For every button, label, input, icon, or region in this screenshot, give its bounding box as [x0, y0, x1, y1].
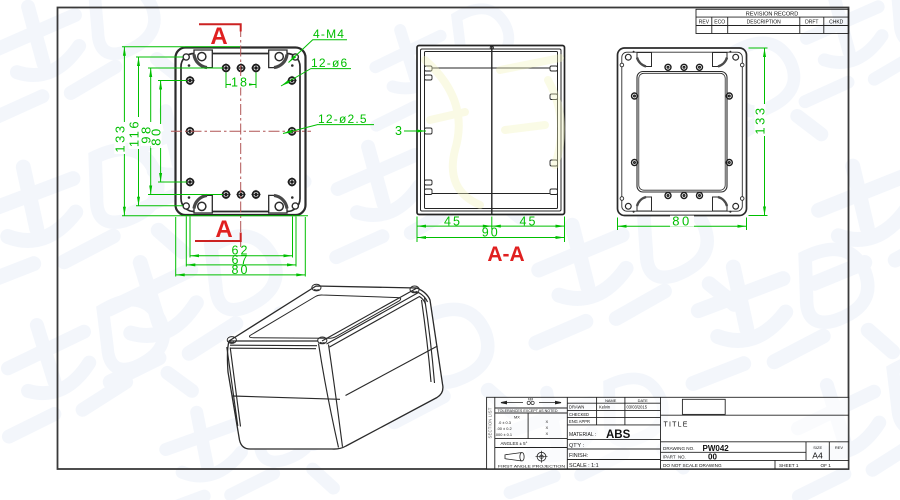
svg-text:REV: REV [699, 19, 710, 25]
svg-text:ECO: ECO [714, 19, 725, 25]
svg-text:MX: MX [514, 414, 520, 419]
svg-text:/PART NO.: /PART NO. [663, 455, 686, 460]
svg-text:FINISH:: FINISH: [569, 453, 588, 459]
svg-text:SIZE: SIZE [813, 445, 822, 450]
svg-text:SECTION LIST: SECTION LIST [487, 407, 492, 438]
svg-text:CHKD: CHKD [829, 19, 844, 25]
svg-text:MATERIAL :: MATERIAL : [569, 432, 596, 438]
svg-text:TOLERANCES EXCEPT AS NOTED: TOLERANCES EXCEPT AS NOTED [498, 409, 558, 413]
svg-text:ABS: ABS [606, 429, 631, 441]
svg-text:DRAWING NO.: DRAWING NO. [663, 446, 694, 451]
svg-text:A: A [215, 216, 232, 243]
svg-text:X: X [546, 425, 549, 430]
svg-text:.00 ± 0.2: .00 ± 0.2 [497, 426, 512, 431]
svg-text:TITLE: TITLE [664, 421, 689, 428]
svg-text:QT'Y :: QT'Y : [569, 443, 584, 449]
svg-text:45: 45 [444, 214, 462, 228]
svg-text:.000 ± 0.1: .000 ± 0.1 [495, 432, 512, 437]
svg-text:FIRST ANGLE PROJECTION: FIRST ANGLE PROJECTION [498, 465, 565, 469]
svg-text:DRAWN: DRAWN [569, 405, 584, 410]
svg-text:A4: A4 [812, 450, 823, 460]
svg-text:80: 80 [232, 263, 250, 277]
svg-text:03/03/2015: 03/03/2015 [627, 405, 648, 410]
svg-text:REV: REV [835, 445, 844, 450]
svg-text:4-M4: 4-M4 [313, 27, 345, 41]
svg-text:133: 133 [753, 105, 768, 134]
svg-text:.0 ± 0.3: .0 ± 0.3 [498, 420, 511, 425]
svg-text:CHECKED: CHECKED [569, 412, 589, 417]
svg-text:3: 3 [395, 124, 402, 138]
svg-text:Kelvin: Kelvin [599, 405, 611, 410]
svg-text:MM: MM [528, 398, 534, 402]
svg-text:REVISION RECORD: REVISION RECORD [746, 11, 799, 17]
svg-text:133: 133 [112, 123, 127, 152]
svg-text:00: 00 [708, 453, 717, 462]
svg-text:OF 1: OF 1 [821, 463, 832, 468]
svg-text:SHEET 1: SHEET 1 [779, 463, 799, 468]
svg-text:A-A: A-A [487, 243, 524, 266]
svg-text:DO NOT SCALE DRAWING: DO NOT SCALE DRAWING [663, 463, 722, 468]
svg-text:12-ø6: 12-ø6 [311, 56, 348, 70]
svg-text:SCALE : 1:1: SCALE : 1:1 [569, 463, 599, 469]
svg-text:ENG APPR: ENG APPR [569, 419, 590, 424]
svg-text:NAME: NAME [605, 398, 617, 403]
svg-text:DATE: DATE [638, 398, 648, 403]
svg-text:80: 80 [672, 214, 691, 229]
svg-text:X: X [546, 419, 549, 424]
svg-text:DRFT: DRFT [805, 19, 818, 25]
svg-text:A: A [210, 23, 227, 50]
svg-text:X: X [546, 431, 549, 436]
svg-text:45: 45 [520, 214, 538, 228]
svg-text:18: 18 [231, 76, 249, 90]
svg-text:ANGLES ± 5°: ANGLES ± 5° [501, 441, 528, 446]
svg-text:90: 90 [482, 226, 500, 240]
svg-text:12-ø2.5: 12-ø2.5 [318, 112, 368, 126]
svg-text:DESCRIPTION: DESCRIPTION [747, 19, 782, 25]
svg-text:80: 80 [149, 126, 164, 145]
